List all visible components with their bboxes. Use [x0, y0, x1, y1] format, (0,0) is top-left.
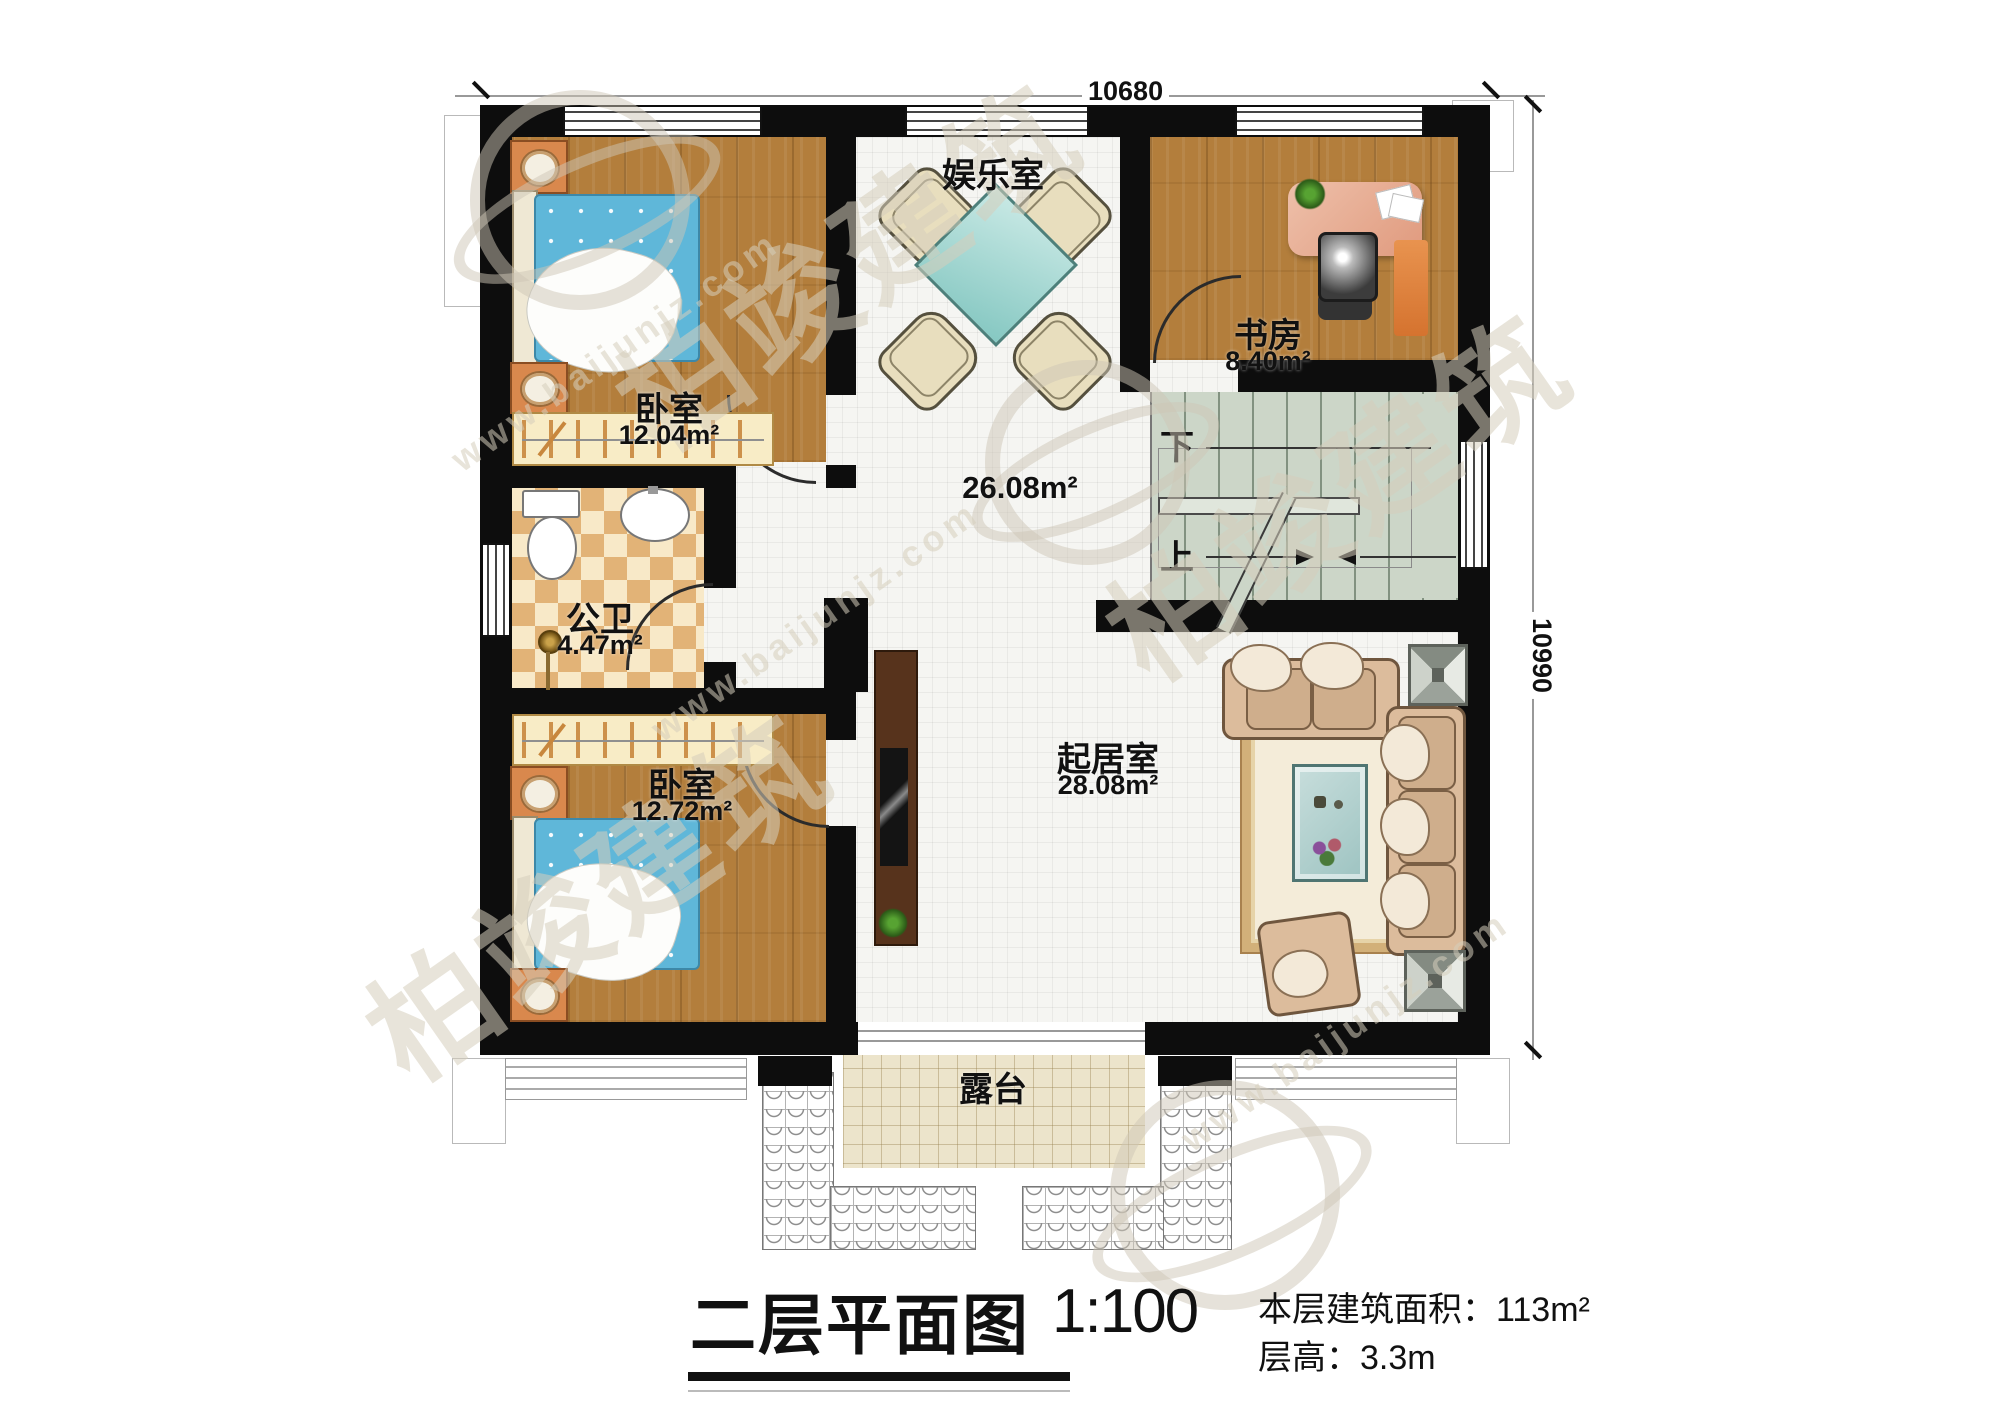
stairs-arrow-left — [1338, 549, 1356, 565]
stairs-down-label: 下 — [1160, 420, 1194, 469]
stairs-up-label: 上 — [1160, 530, 1194, 579]
nightstand — [510, 968, 568, 1022]
floor-area-label: 本层建筑面积： — [1258, 1291, 1496, 1329]
nightstand — [510, 766, 568, 820]
nightstand-decor — [520, 149, 560, 187]
coffee-table-flowers — [1308, 836, 1346, 866]
wall-hall-living-stub — [824, 598, 868, 692]
stairs-edge-line — [1150, 392, 1152, 600]
wardrobe — [512, 714, 774, 766]
side-table-center — [1432, 668, 1445, 681]
stairs-arrow-right — [1296, 549, 1314, 565]
coffee-table-decor — [1334, 800, 1343, 809]
window-entertainment — [905, 107, 1089, 135]
floor-area-info: 本层建筑面积：113m² — [1258, 1282, 1590, 1331]
corner-outline — [1456, 1058, 1510, 1144]
stairs-handrail — [1158, 497, 1360, 515]
floor-height-value: 3.3m — [1360, 1339, 1436, 1377]
toilet-bowl — [527, 516, 577, 580]
plan-scale: 1:100 — [1052, 1276, 1197, 1347]
tv — [880, 748, 908, 866]
study-area-label: 8.40m² — [1225, 346, 1311, 377]
title-underline-thin — [688, 1390, 1070, 1392]
coffee-table-decor — [1314, 796, 1326, 808]
title-underline — [688, 1372, 1070, 1381]
right-dimension-value: 10990 — [1526, 612, 1557, 699]
floor-height-info: 层高：3.3m — [1258, 1330, 1436, 1379]
wall-bathroom-right — [704, 462, 736, 588]
corner-outline — [452, 1058, 506, 1144]
side-table-center — [1428, 974, 1441, 987]
sofa-pillow — [1380, 798, 1430, 856]
right-dimension-line — [1532, 100, 1534, 1060]
wall-bedroom-bottom-right-b — [826, 826, 856, 1022]
sofa-pillow — [1380, 724, 1430, 782]
sofa-pillow — [1380, 872, 1430, 930]
bedroom-bottom-area-label: 12.72m² — [632, 796, 733, 827]
top-dimension-value: 10680 — [1082, 76, 1169, 107]
terrace-railing-bottom-right — [1022, 1186, 1164, 1250]
bedroom-top-area-label: 12.04m² — [619, 420, 720, 451]
floor-area-value: 113m² — [1496, 1291, 1590, 1329]
living-area-label: 28.08m² — [1058, 770, 1159, 801]
side-table — [1404, 950, 1466, 1012]
wall-bedroom-bottom-right-a — [826, 688, 856, 740]
window-stairs-right — [1461, 440, 1487, 569]
nightstand — [510, 140, 568, 194]
toilet-tank — [522, 490, 580, 518]
terrace-railing-right — [1160, 1072, 1232, 1250]
entertainment-label: 娱乐室 — [942, 148, 1044, 197]
wall-stairs-bottom — [1096, 600, 1458, 632]
wall-study-left — [1120, 137, 1150, 360]
lower-floor-window-left — [505, 1058, 747, 1100]
wall-study-bottom-a — [1120, 360, 1150, 392]
terrace-door-opening — [858, 1022, 1145, 1055]
stairs-up-line — [1206, 556, 1298, 558]
wall-stub — [826, 465, 856, 488]
plan-title: 二层平面图 — [690, 1272, 1030, 1368]
hall-area-label: 26.08m² — [962, 470, 1077, 506]
sofa-pillow — [1230, 644, 1292, 692]
drain-handle — [546, 652, 550, 690]
window-bedroom-top — [563, 107, 762, 135]
wall-bedroom-top-right — [826, 137, 856, 395]
side-table — [1408, 644, 1468, 706]
sink-faucet — [648, 486, 658, 494]
floor-height-label: 层高： — [1258, 1339, 1360, 1377]
terrace-label: 露台 — [959, 1062, 1027, 1111]
computer-monitor — [1318, 232, 1378, 302]
lower-floor-window-right — [1235, 1058, 1457, 1100]
wardrobe-rod — [522, 740, 765, 742]
floor-plan-page: 10680 10990 — [0, 0, 2000, 1413]
nightstand-decor — [520, 775, 560, 813]
wall-terrace-stub-left — [758, 1056, 832, 1086]
window-bathroom-left — [483, 543, 509, 637]
top-dimension-line — [455, 95, 1545, 97]
terrace-railing-left — [762, 1072, 834, 1250]
wall-bottom-left — [480, 1022, 858, 1055]
nightstand-decor — [520, 371, 560, 408]
bathroom-area-label: 4.47m² — [557, 630, 643, 661]
window-study — [1235, 107, 1424, 135]
desk-plant — [1292, 176, 1328, 212]
terrace-railing-bottom-left — [830, 1186, 976, 1250]
stairs-down-line — [1206, 447, 1431, 449]
wall-bath-bedroom-divider — [480, 688, 826, 714]
floor-plant — [876, 906, 910, 940]
sofa-pillow — [1300, 642, 1364, 690]
nightstand-decor — [520, 977, 560, 1015]
wall-terrace-stub-right — [1158, 1056, 1232, 1086]
wall-bottom-right — [1145, 1022, 1490, 1055]
sink — [620, 488, 690, 542]
desk-side-panel — [1394, 240, 1428, 336]
nightstand — [510, 362, 568, 414]
stairs-up-line2 — [1360, 556, 1456, 558]
